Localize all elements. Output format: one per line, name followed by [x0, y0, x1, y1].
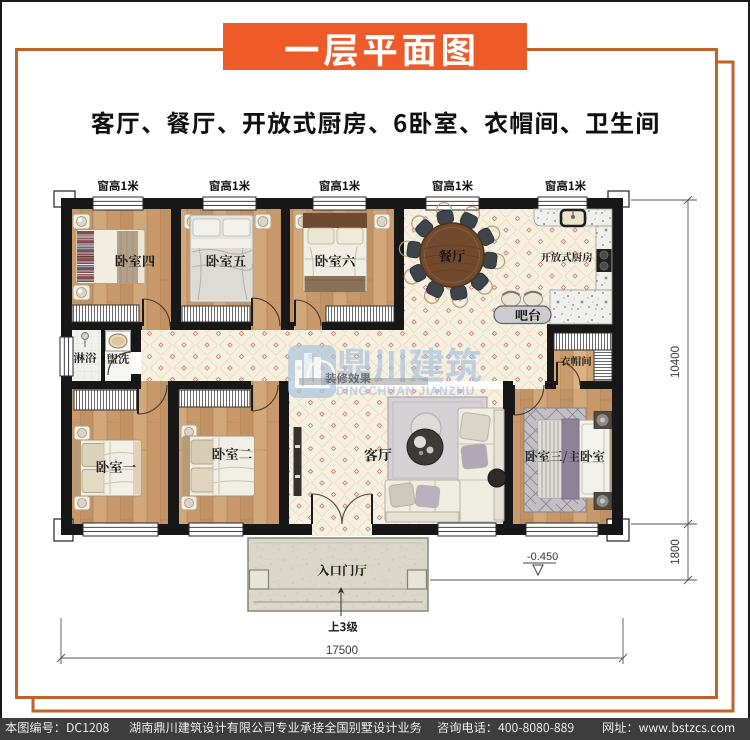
- svg-text:1800: 1800: [670, 539, 682, 565]
- svg-text:17500: 17500: [326, 645, 358, 657]
- svg-text:10400: 10400: [670, 346, 682, 378]
- svg-text:-0.450: -0.450: [527, 551, 558, 563]
- svg-text:DINGCHUAN JIANZHU: DINGCHUAN JIANZHU: [336, 384, 475, 398]
